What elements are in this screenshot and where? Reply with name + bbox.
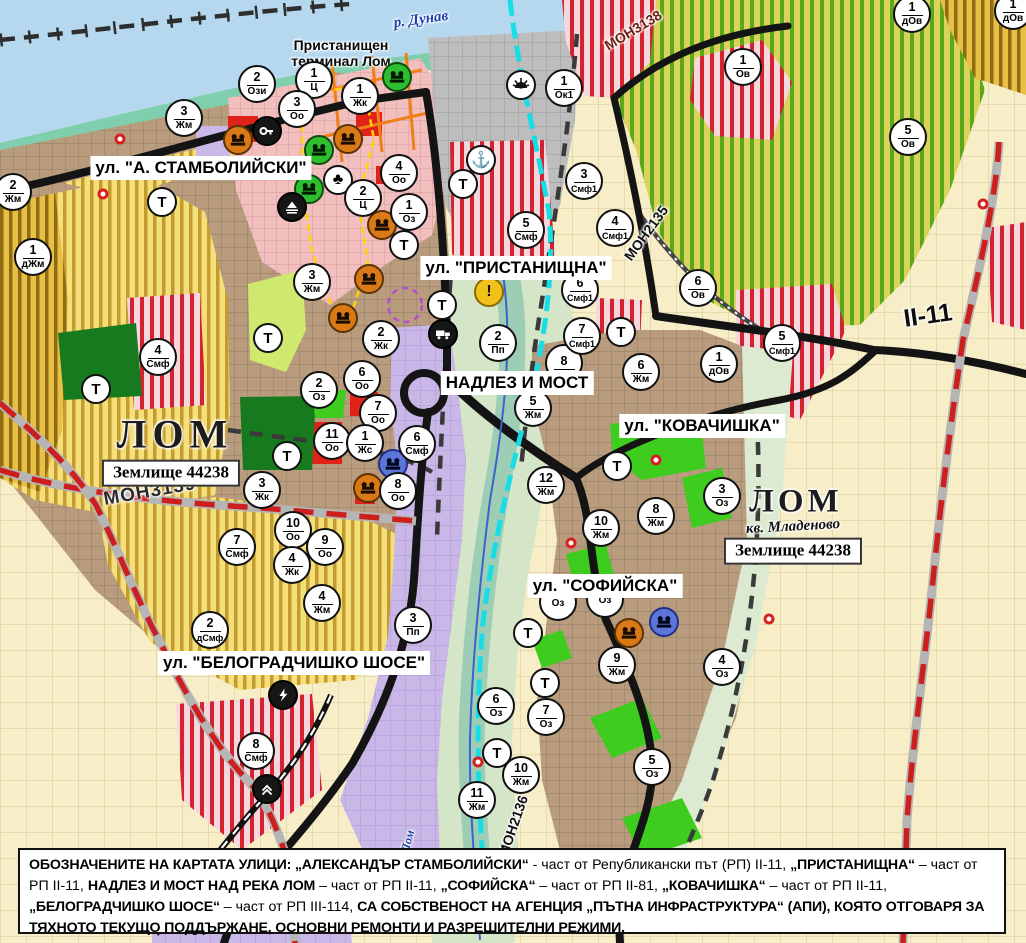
- transformer-marker: Т: [427, 290, 457, 320]
- truck-black-icon: [428, 319, 458, 349]
- place-label-lomcity: ЛОМ: [117, 411, 234, 458]
- footer-text-segment: – част от РП II-11,: [315, 878, 440, 894]
- zone-marker: 8Оо: [379, 472, 417, 510]
- warning-yellow-icon: !: [474, 277, 504, 307]
- key-black-icon: [252, 116, 282, 146]
- zone-marker: 6Ов: [679, 269, 717, 307]
- zone-marker: 5Оз: [633, 748, 671, 786]
- zone-marker: 4Оз: [703, 648, 741, 686]
- zone-marker: 1Ов: [724, 48, 762, 86]
- monument-orange-icon: [223, 125, 253, 155]
- zone-marker: 1дЖм: [14, 238, 52, 276]
- zone-marker: 3Оз: [703, 477, 741, 515]
- zone-marker: 4Смф1: [596, 209, 634, 247]
- footer-text-segment: „БЕЛОГРАДЧИШКО ШОСЕ“: [29, 899, 220, 915]
- zone-marker: 6Смф: [398, 425, 436, 463]
- transformer-marker: Т: [448, 169, 478, 199]
- transformer-marker: Т: [530, 668, 560, 698]
- footer-text-segment: „СОФИЙСКА“: [441, 878, 536, 894]
- road-overpass-loop: [404, 373, 444, 413]
- zone-marker: 5Смф: [507, 211, 545, 249]
- zone-marker: 9Жм: [598, 646, 636, 684]
- transformer-marker: Т: [482, 738, 512, 768]
- monument-orange-icon: [614, 618, 644, 648]
- transformer-marker: Т: [606, 317, 636, 347]
- zone-marker: 6Жм: [622, 353, 660, 391]
- red-dot-marker: [651, 455, 662, 466]
- port-area: [428, 30, 578, 258]
- street-label: ул. "СОФИЙСКА": [528, 574, 683, 598]
- zone-marker: 12Жм: [527, 466, 565, 504]
- zone-marker: 10Жм: [582, 509, 620, 547]
- zone-marker: 1дОв: [700, 345, 738, 383]
- zone-marker: 1Ок1: [545, 69, 583, 107]
- street-label: ул. "КОВАЧИШКА": [619, 414, 785, 438]
- footer-text-segment: – част от РП III-114,: [220, 899, 357, 915]
- zone-marker: 9Оо: [306, 528, 344, 566]
- transformer-marker: Т: [513, 618, 543, 648]
- lightning-black-icon: [268, 680, 298, 710]
- zone-marker: 3Жм: [165, 99, 203, 137]
- zone-marker: 11Жм: [458, 781, 496, 819]
- red-dot-marker: [473, 757, 484, 768]
- red-dot-marker: [98, 189, 109, 200]
- transformer-marker: Т: [81, 374, 111, 404]
- footer-text-segment: - част от Републикански път (РП) II-11,: [529, 857, 790, 873]
- red-dot-marker: [566, 538, 577, 549]
- zone-marker: 1Жс: [346, 424, 384, 462]
- vineyard-zone: [580, 0, 985, 328]
- zone-marker: 2Ози: [238, 65, 276, 103]
- zone-marker: 1Жк: [341, 77, 379, 115]
- monument-blue-icon: [649, 607, 679, 637]
- transformer-marker: Т: [602, 451, 632, 481]
- monument-orange-icon: [354, 264, 384, 294]
- zoning-map: 2Ози1Ц3Оо1Жк1Ок13Жм2Жм1дЖм4Оо2Ц1Оз3Смф15…: [0, 0, 1026, 943]
- red-dot-marker: [978, 199, 989, 210]
- zone-marker: 4Смф: [139, 338, 177, 376]
- place-label-zembox: Землище 44238: [102, 460, 240, 487]
- zone-marker: 4Оо: [380, 154, 418, 192]
- dune-black-icon: [277, 192, 307, 222]
- zone-marker: 3Смф1: [565, 162, 603, 200]
- road-mon3138: [614, 26, 788, 98]
- zone-marker: 2дСмф: [191, 611, 229, 649]
- street-label: НАДЛЕЗ И МОСТ: [441, 371, 594, 395]
- zone-marker: 7Смф1: [563, 317, 601, 355]
- footer-note: ОБОЗНАЧЕНИТЕ НА КАРТАТА УЛИЦИ: „АЛЕКСАНД…: [18, 848, 1006, 934]
- street-label: ул. "А. СТАМБОЛИЙСКИ": [90, 156, 311, 180]
- footer-text-segment: НАДЛЕЗ И МОСТ НАД РЕКА ЛОМ: [88, 878, 315, 894]
- zone-marker: 8Жм: [637, 497, 675, 535]
- zone-marker: 3Пп: [394, 606, 432, 644]
- zone-marker: 5Ов: [889, 118, 927, 156]
- footer-text-segment: „КОВАЧИШКА“: [662, 878, 766, 894]
- zone-marker: 4Жм: [303, 584, 341, 622]
- zone-marker: 8Смф: [237, 732, 275, 770]
- state-border: [0, 4, 350, 40]
- monument-green-icon: [382, 62, 412, 92]
- place-label-lomcity2: ЛОМ: [749, 484, 842, 521]
- footer-text-segment: ОБОЗНАЧЕНИТЕ НА КАРТАТА УЛИЦИ: „АЛЕКСАНД…: [29, 857, 529, 873]
- monument-orange-icon: [328, 303, 358, 333]
- zone-marker: 7Смф: [218, 528, 256, 566]
- transformer-marker: Т: [147, 187, 177, 217]
- transformer-marker: Т: [253, 323, 283, 353]
- crossing-black-icon: [252, 774, 282, 804]
- zone-marker: 7Оз: [527, 698, 565, 736]
- zone-marker: 3Жк: [243, 471, 281, 509]
- monument-orange-icon: [333, 124, 363, 154]
- zone-marker: 3Жм: [293, 263, 331, 301]
- zone-marker: 5Смф1: [763, 324, 801, 362]
- red-dot-marker: [115, 134, 126, 145]
- zone-marker: 2Пп: [479, 324, 517, 362]
- footer-text-segment: „ПРИСТАНИЩНА“: [790, 857, 915, 873]
- street-label: ул. "БЕЛОГРАДЧИШКО ШОСЕ": [158, 651, 430, 675]
- zone-marker: 2Жк: [362, 320, 400, 358]
- purple-dashed-ring: [388, 288, 422, 322]
- transformer-marker: Т: [272, 441, 302, 471]
- zone-marker: 2Ц: [344, 179, 382, 217]
- street-label: ул. "ПРИСТАНИЩНА": [420, 256, 611, 280]
- sun-white-icon: [506, 70, 536, 100]
- pale-yellow-zone: [462, 543, 522, 606]
- zone-marker: 3Оо: [278, 90, 316, 128]
- zone-marker: 2Оз: [300, 371, 338, 409]
- transformer-marker: Т: [389, 230, 419, 260]
- zone-marker: 6Оо: [343, 360, 381, 398]
- footer-text-segment: – част от РП II-11,: [766, 878, 888, 894]
- zone-marker: 1Оз: [390, 193, 428, 231]
- footer-text-segment: – част от РП II-81,: [535, 878, 661, 894]
- road-mon2135: [614, 98, 656, 316]
- place-label-zembox: Землище 44238: [724, 538, 862, 565]
- zone-marker: 6Оз: [477, 687, 515, 725]
- zone-marker: 4Жк: [273, 546, 311, 584]
- red-dot-marker: [764, 614, 775, 625]
